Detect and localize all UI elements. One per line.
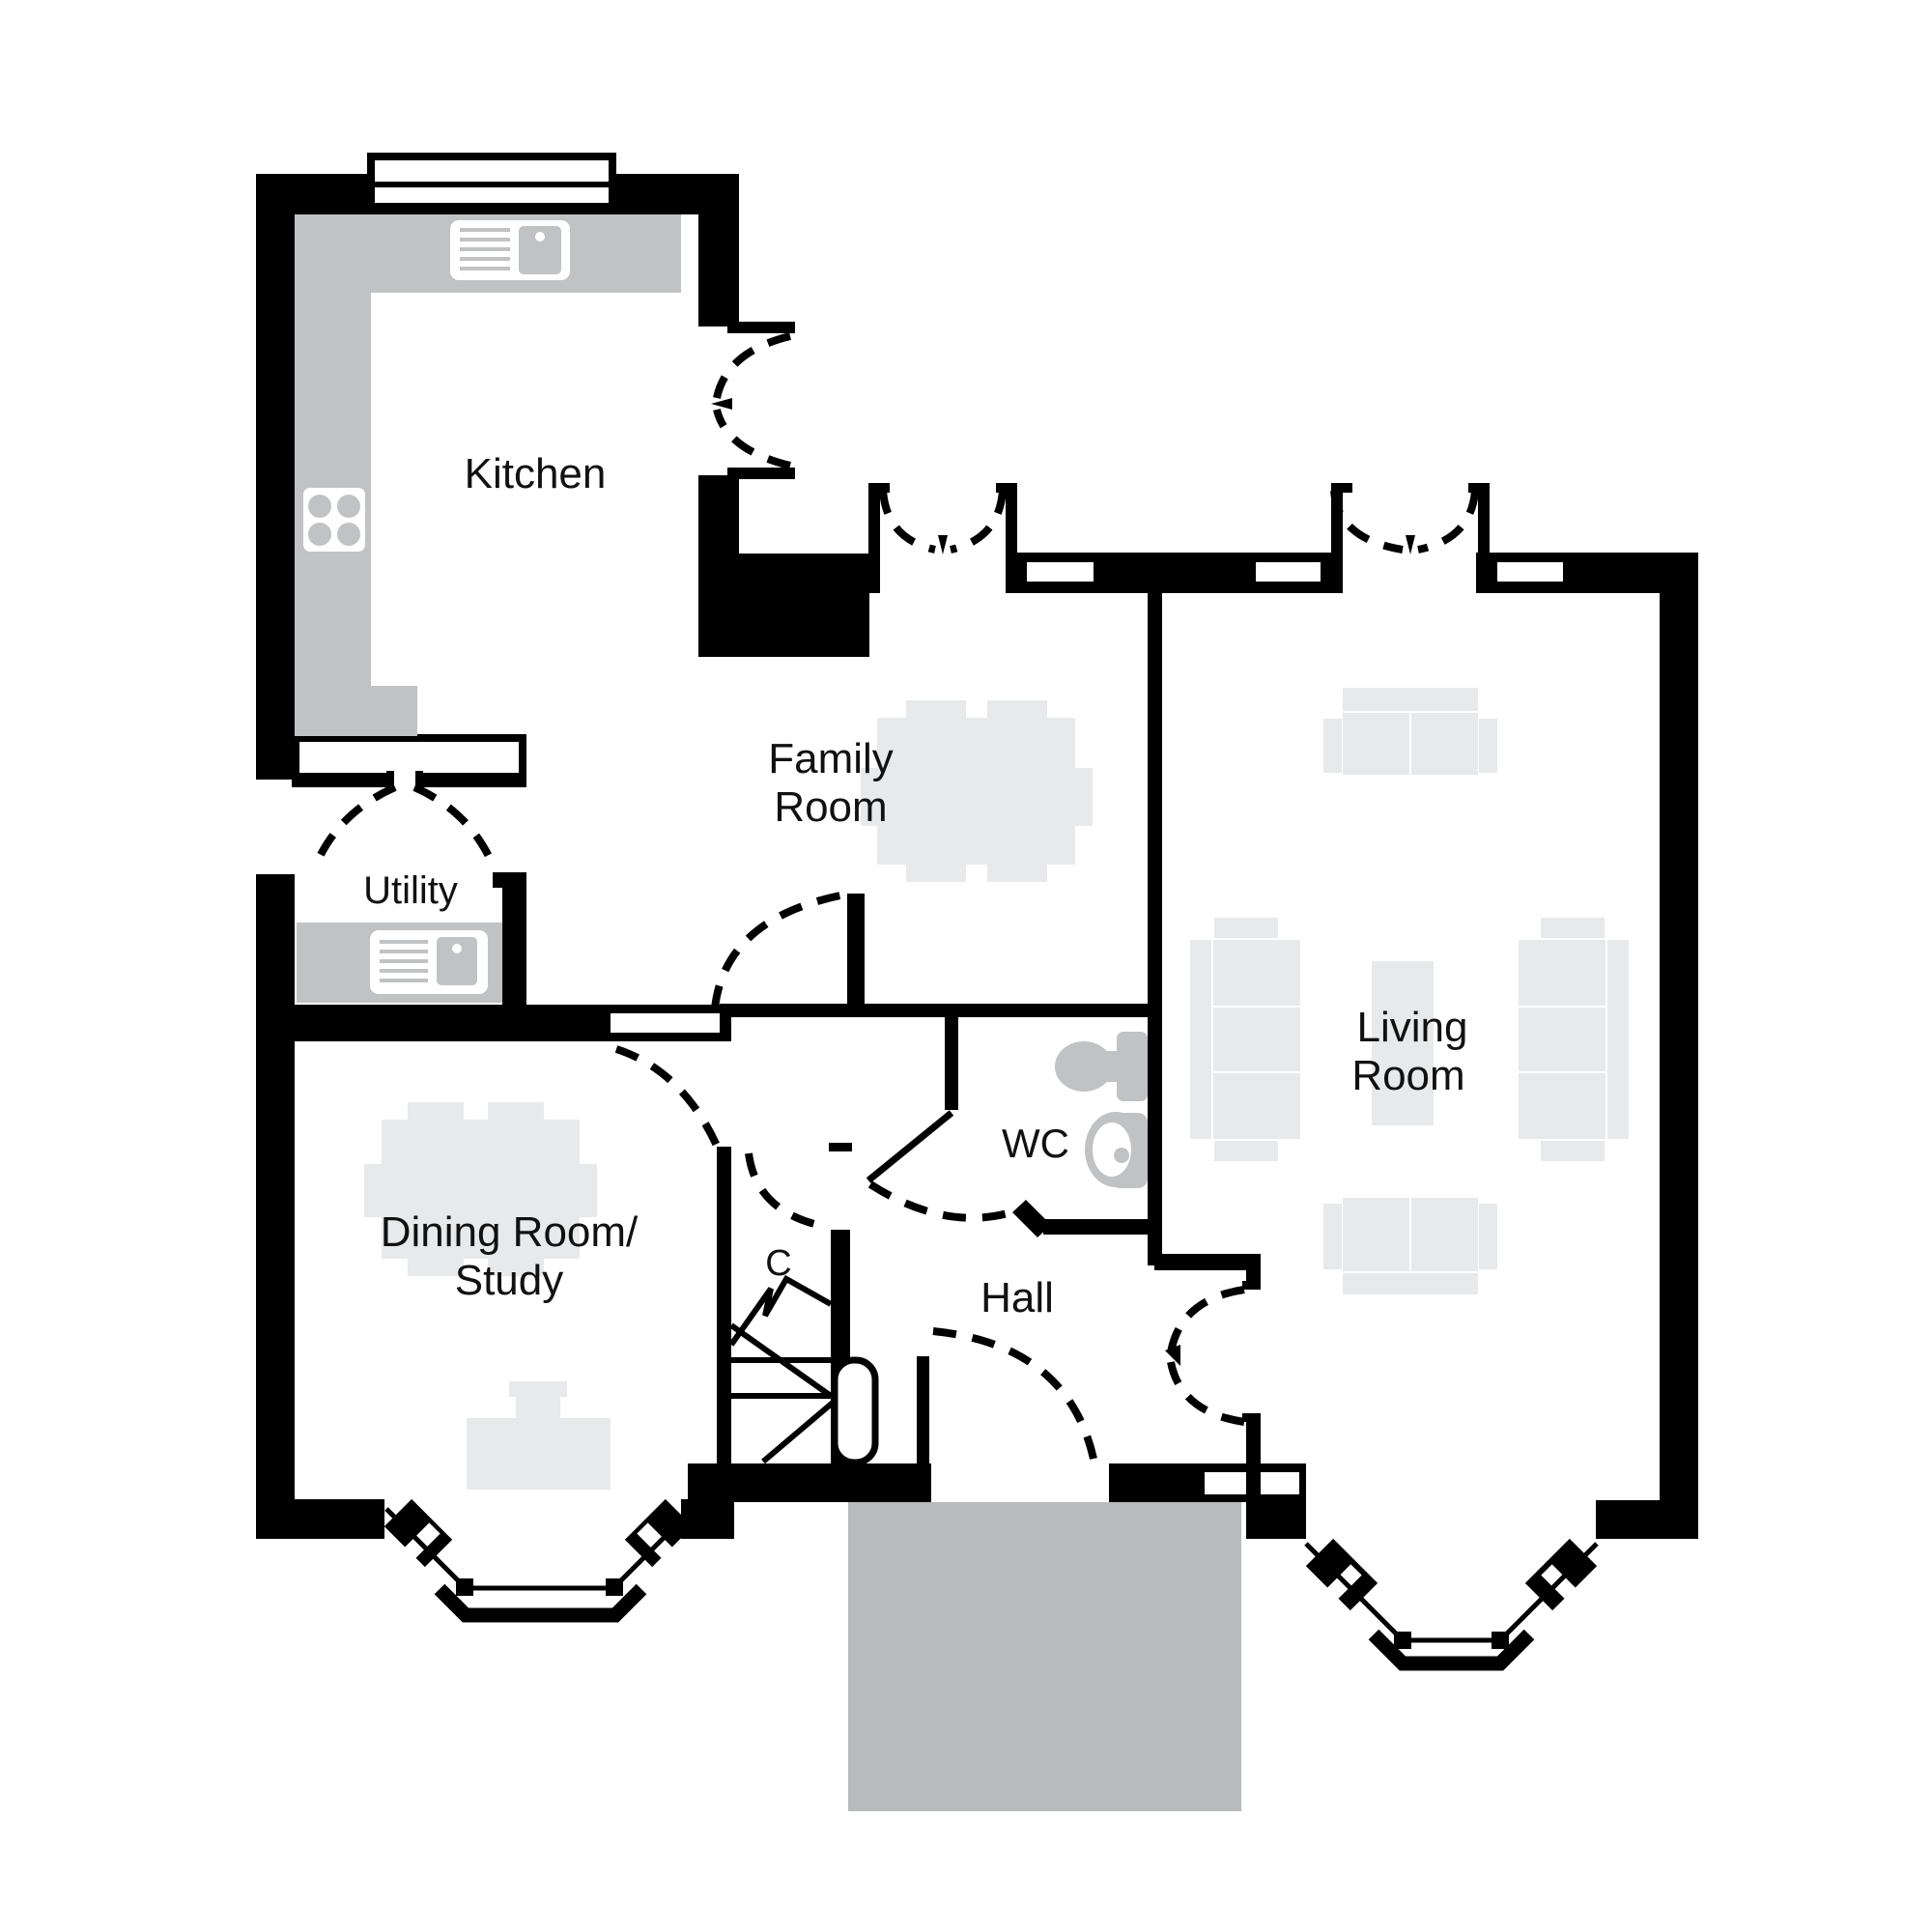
hall-label: Hall [980, 1274, 1054, 1321]
living-label-1: Living [1357, 1004, 1468, 1051]
living-label-2: Room [1351, 1052, 1464, 1099]
dining-label-1: Dining Room/ [381, 1208, 639, 1256]
cupboard-label: C [765, 1243, 791, 1284]
sofa-left [1190, 918, 1300, 1161]
rear-window-3 [1497, 562, 1563, 582]
room-family: Family Room [768, 700, 1093, 882]
utility-glazed-doors [292, 734, 526, 789]
dining-label-2: Study [455, 1257, 564, 1304]
room-wc: WC [1002, 1032, 1148, 1188]
floor-plan: Kitchen Utility Family Room [0, 0, 1932, 1932]
living-bay-window [1306, 1544, 1597, 1663]
utility-doors-swing [317, 787, 493, 865]
porch-step [848, 1502, 1241, 1811]
stair-handrail [835, 1360, 875, 1463]
rear-window-1 [1027, 562, 1094, 582]
family-label-2: Room [774, 783, 887, 831]
toilet-icon [1055, 1032, 1148, 1101]
living-garden-doors-swing [1334, 491, 1475, 554]
family-garden-doors-swing [883, 491, 1003, 554]
stairs: C [731, 1243, 875, 1463]
hob-icon [303, 488, 365, 552]
family-table [861, 700, 1093, 882]
room-living: Living Room [1190, 688, 1629, 1294]
family-label-1: Family [768, 735, 894, 782]
sofa-right [1519, 918, 1629, 1161]
wc-label: WC [1002, 1121, 1069, 1166]
room-kitchen: Kitchen [295, 214, 681, 736]
room-utility: Utility [297, 869, 502, 1003]
kitchen-sink-icon [450, 220, 570, 280]
utility-sink-icon [370, 930, 488, 994]
basin-icon [1085, 1112, 1148, 1188]
utility-label: Utility [363, 869, 458, 912]
room-dining: Dining Room/ Study [364, 1102, 639, 1490]
sofa-bottom [1323, 1198, 1497, 1294]
sofa-top [1323, 688, 1497, 775]
dining-door-swing [616, 1049, 717, 1146]
rear-window-2 [1256, 562, 1321, 582]
family-door-swing [715, 895, 840, 1009]
kitchen-window-icon [367, 153, 616, 209]
living-doors-swing [1165, 1290, 1244, 1422]
cupboard-door-swing [749, 1153, 827, 1227]
kitchen-doors-swing [711, 336, 790, 466]
dining-bay-window [386, 1509, 693, 1615]
desk [467, 1381, 611, 1490]
kitchen-label: Kitchen [465, 450, 607, 497]
floor-plan-svg: Kitchen Utility Family Room [0, 0, 1932, 1932]
front-door-swing [933, 1331, 1094, 1459]
